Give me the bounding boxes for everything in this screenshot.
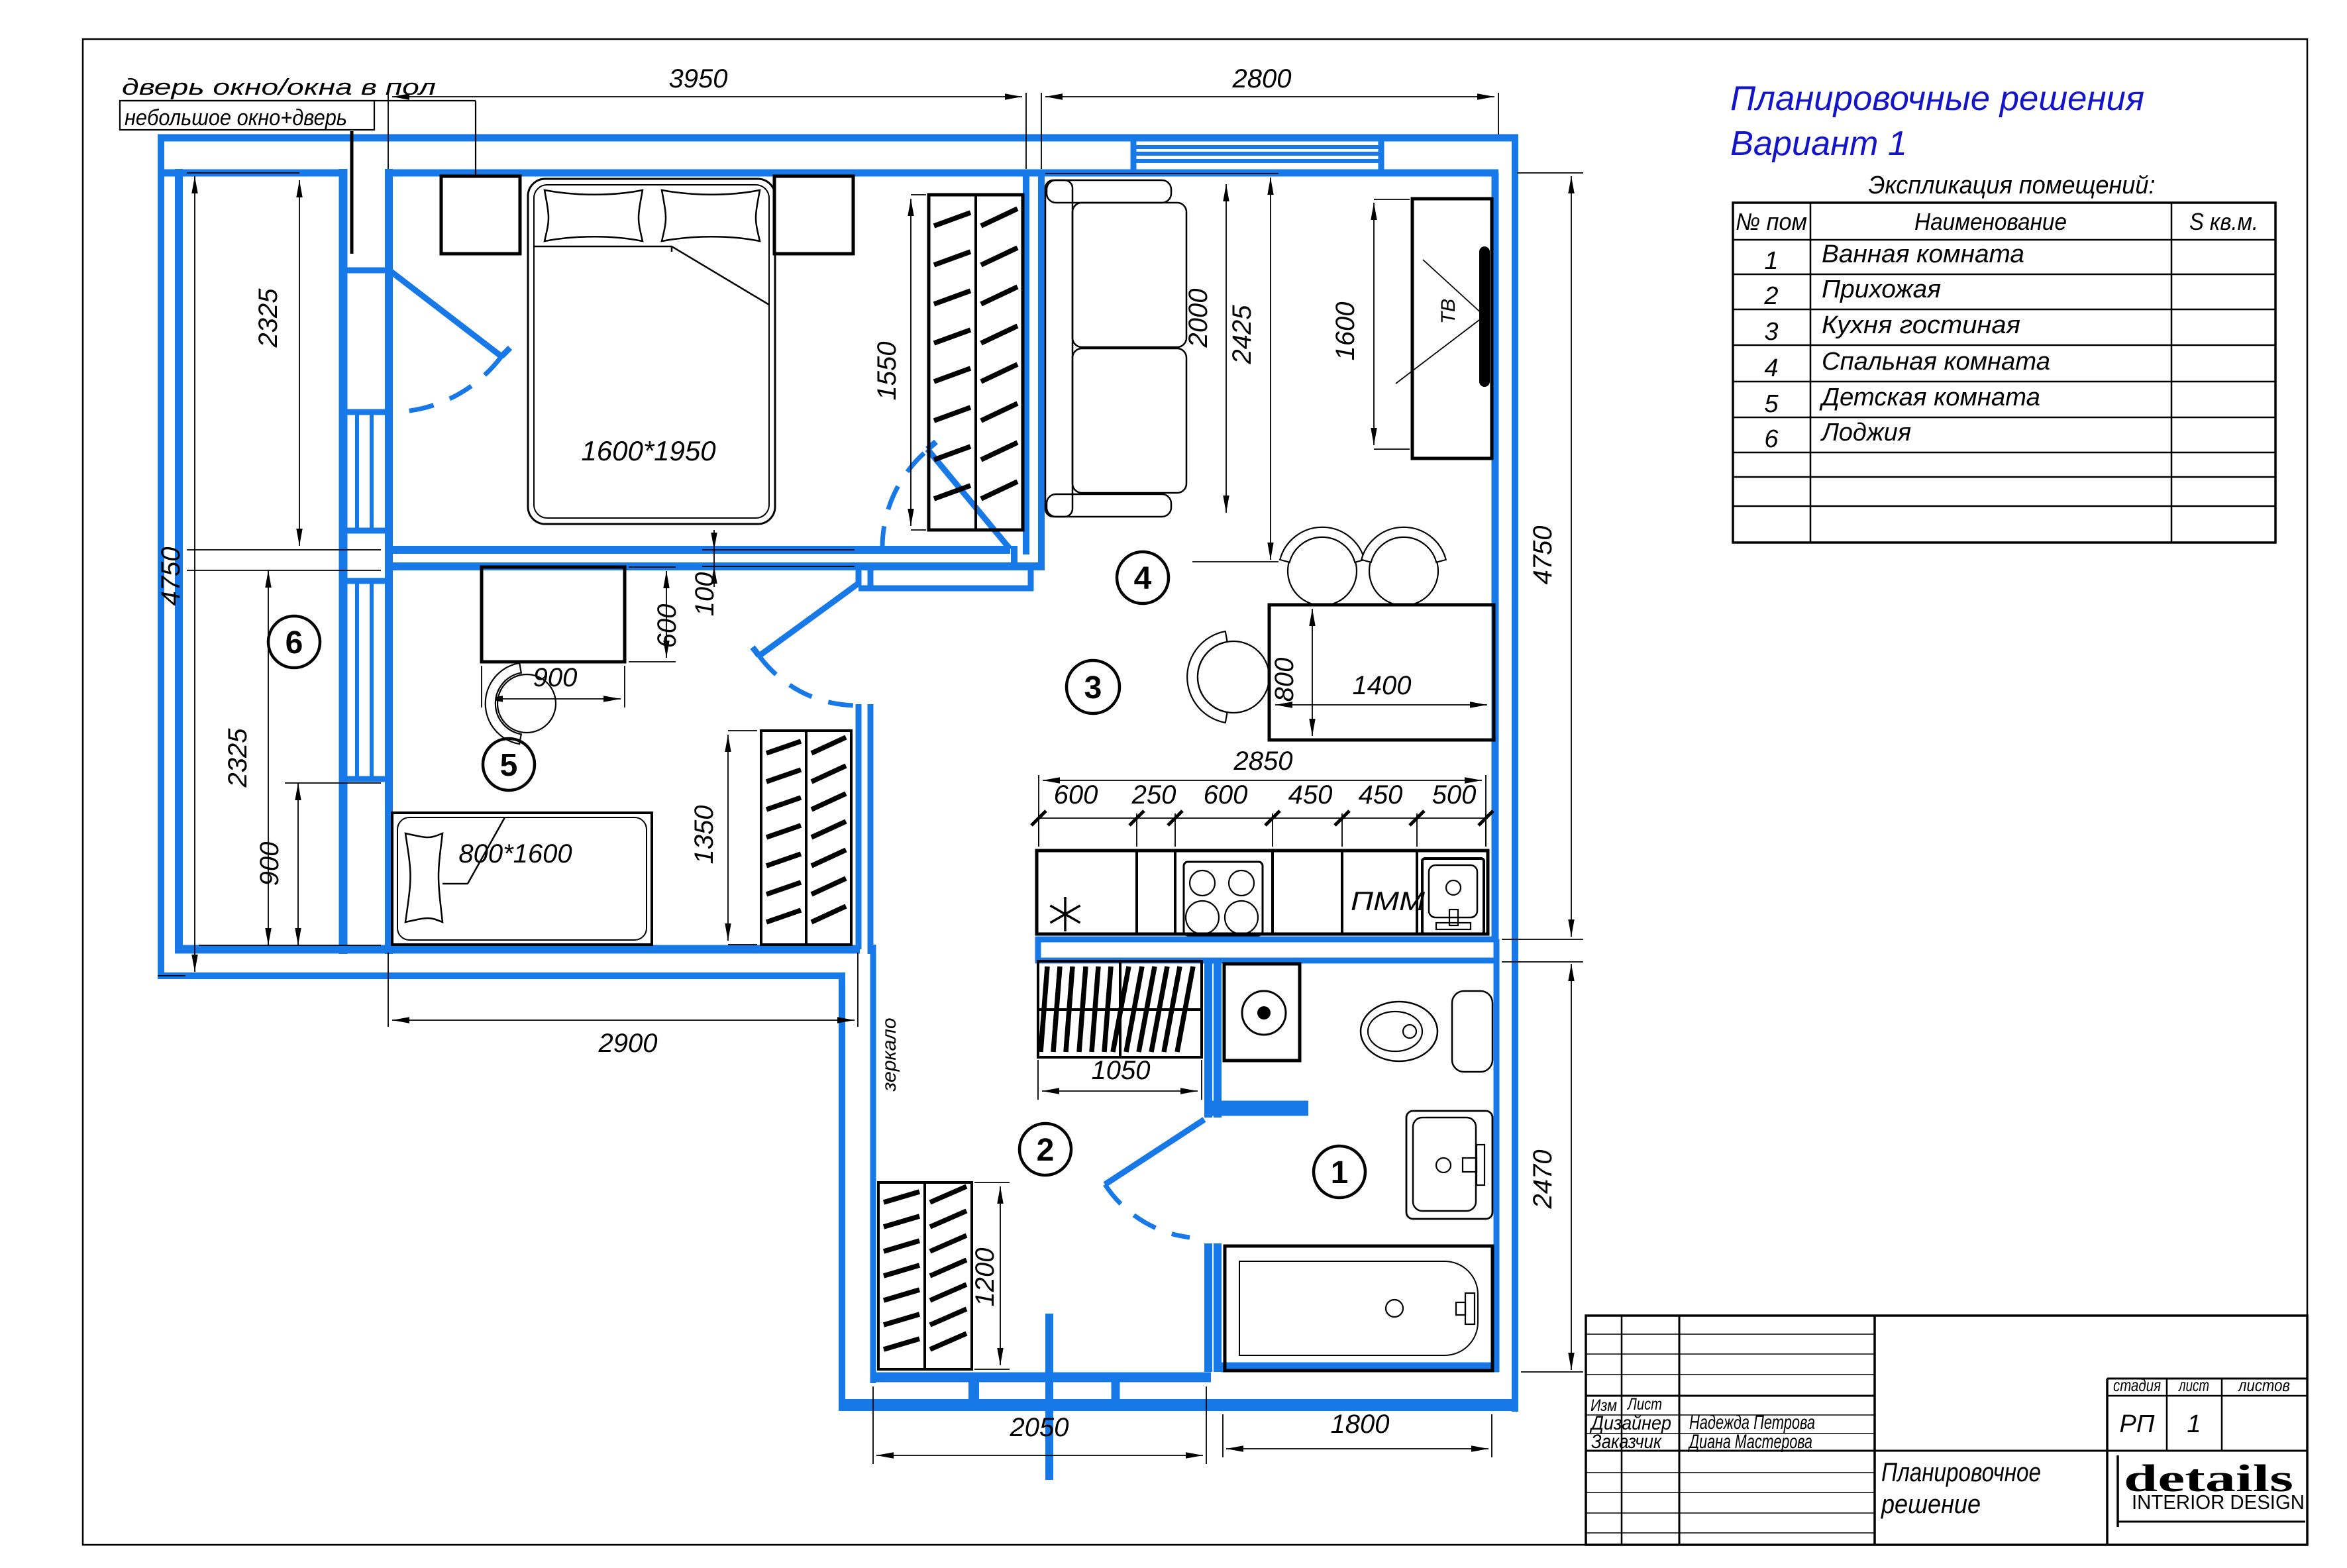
svg-text:ПММ: ПММ (1351, 887, 1426, 916)
svg-text:3: 3 (1764, 318, 1778, 346)
svg-text:800: 800 (1270, 658, 1299, 702)
svg-text:1: 1 (1331, 1155, 1349, 1190)
svg-text:1400: 1400 (1353, 671, 1412, 700)
svg-text:Планировочные решения: Планировочные решения (1730, 79, 2144, 118)
svg-text:1350: 1350 (690, 806, 719, 864)
svg-text:450: 450 (1359, 780, 1403, 810)
svg-text:листов: листов (2237, 1375, 2290, 1395)
svg-text:Диана Мастерова: Диана Мастерова (1688, 1431, 1812, 1453)
svg-text:Наименование: Наименование (1914, 208, 2067, 235)
svg-text:Лоджия: Лоджия (1820, 419, 1911, 446)
svg-text:стадия: стадия (2113, 1375, 2161, 1395)
svg-text:небольшое окно+дверь: небольшое окно+дверь (125, 105, 347, 131)
svg-text:2325: 2325 (254, 288, 283, 348)
svg-text:Заказчик: Заказчик (1591, 1431, 1663, 1453)
svg-text:1600: 1600 (1331, 302, 1360, 361)
svg-text:900: 900 (255, 842, 284, 886)
svg-text:Вариант 1: Вариант 1 (1730, 125, 1907, 163)
svg-text:дверь окно/окна в пол: дверь окно/окна в пол (122, 75, 436, 100)
svg-text:4: 4 (1764, 354, 1778, 382)
svg-text:3950: 3950 (669, 64, 728, 93)
svg-text:2: 2 (1037, 1133, 1055, 1168)
svg-text:Экспликация помещений:: Экспликация помещений: (1869, 172, 2156, 199)
svg-text:решение: решение (1881, 1490, 1981, 1519)
svg-text:INTERIOR DESIGN: INTERIOR DESIGN (2132, 1490, 2305, 1514)
svg-text:Детская комната: Детская комната (1819, 384, 2040, 411)
svg-text:2900: 2900 (598, 1029, 658, 1058)
svg-text:лист: лист (2178, 1375, 2209, 1395)
svg-text:4750: 4750 (156, 547, 185, 606)
svg-text:5: 5 (1764, 390, 1779, 418)
svg-text:1600*1950: 1600*1950 (581, 435, 716, 466)
svg-text:Лист: Лист (1626, 1395, 1662, 1414)
svg-text:600: 600 (652, 604, 682, 649)
svg-text:2800: 2800 (1232, 64, 1292, 93)
svg-text:800*1600: 800*1600 (458, 839, 572, 868)
svg-text:зеркало: зеркало (878, 1018, 900, 1092)
svg-text:Планировочное: Планировочное (1881, 1458, 2041, 1487)
svg-text:4: 4 (1134, 561, 1152, 596)
svg-text:450: 450 (1288, 780, 1333, 810)
svg-text:2470: 2470 (1528, 1150, 1557, 1210)
svg-text:5: 5 (500, 748, 518, 783)
svg-text:РП: РП (2120, 1410, 2155, 1438)
svg-text:S кв.м.: S кв.м. (2189, 208, 2258, 235)
svg-text:500: 500 (1432, 780, 1477, 810)
svg-text:1: 1 (1764, 247, 1778, 275)
svg-text:1200: 1200 (970, 1248, 1000, 1307)
svg-text:1800: 1800 (1331, 1410, 1390, 1439)
svg-text:3: 3 (1084, 670, 1102, 706)
svg-text:4750: 4750 (1528, 526, 1557, 585)
svg-text:2325: 2325 (223, 728, 252, 788)
svg-text:1050: 1050 (1092, 1056, 1151, 1085)
svg-text:Кухня гостиная: Кухня гостиная (1822, 311, 2020, 339)
svg-text:2000: 2000 (1184, 289, 1213, 348)
svg-text:6: 6 (286, 625, 303, 660)
svg-text:№ пом: № пом (1736, 208, 1807, 235)
svg-text:Ванная комната: Ванная комната (1822, 240, 2024, 268)
svg-text:2425: 2425 (1227, 305, 1257, 365)
svg-text:250: 250 (1131, 780, 1176, 810)
svg-text:600: 600 (1054, 780, 1098, 810)
svg-text:2050: 2050 (1010, 1413, 1069, 1442)
svg-text:6: 6 (1764, 425, 1779, 453)
svg-text:100: 100 (690, 572, 719, 617)
svg-text:Спальная комната: Спальная комната (1822, 348, 2050, 376)
svg-text:1: 1 (2187, 1410, 2201, 1438)
svg-text:ТВ: ТВ (1437, 299, 1459, 324)
svg-text:1550: 1550 (872, 342, 902, 401)
svg-text:2850: 2850 (1233, 747, 1293, 776)
svg-text:Прихожая: Прихожая (1822, 276, 1941, 303)
svg-text:600: 600 (1204, 780, 1248, 810)
svg-text:2: 2 (1763, 282, 1778, 310)
